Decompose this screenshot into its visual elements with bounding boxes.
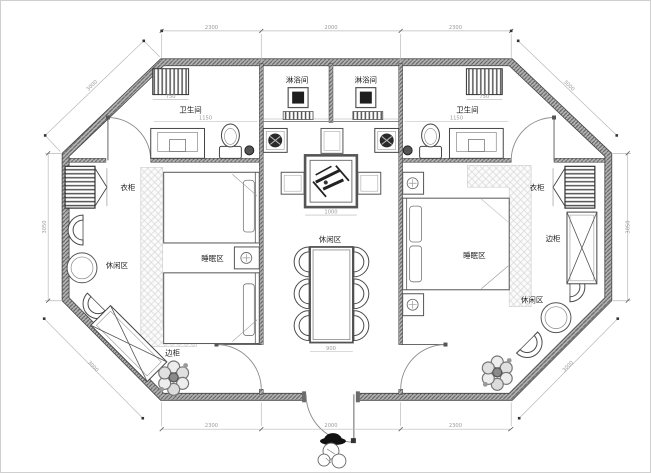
plant-right [482, 356, 512, 390]
toilet-right [420, 124, 442, 158]
bedroom-right: 衣柜 睡眠区 休闲区 边柜 [403, 166, 597, 390]
shower-left: 淋浴间 [283, 75, 313, 120]
lounge-right-label: 休闲区 [521, 295, 544, 305]
dim-top-left: 2300 [205, 25, 218, 31]
nightstand-left [234, 247, 259, 269]
door-bedroom-left [214, 343, 261, 390]
dim-center-table: 1000 [324, 210, 337, 216]
bed-left-1 [164, 172, 260, 243]
side-cabinet-right-label: 边柜 [546, 233, 561, 243]
dim-top-center: 2000 [324, 25, 337, 31]
nightstand-right-2 [403, 294, 424, 316]
toilet-left [219, 124, 241, 158]
entrance-opening [305, 390, 357, 403]
towel-radiator-left [153, 69, 189, 95]
vanity-right [449, 128, 503, 158]
lounge-left-label: 休闲区 [106, 260, 129, 270]
floor-plan-canvas: 750 1150 卫生间 750 115 [1, 1, 650, 472]
shower-bench-left [283, 112, 313, 120]
dim-bottom-center: 2000 [324, 423, 337, 429]
dim-diag-bottom-right: 3000 [561, 360, 575, 374]
dim-left-side: 3050 [42, 220, 48, 233]
wardrobe-left [65, 166, 107, 208]
towel-radiator-right [466, 69, 502, 95]
bathroom-right-label: 卫生间 [456, 105, 478, 115]
floor-plan-page: 750 1150 卫生间 750 115 [0, 0, 651, 473]
side-cabinet-right [567, 212, 597, 284]
bathroom-left: 750 1150 卫生间 [151, 69, 258, 159]
entrance-figure [318, 433, 346, 468]
shower-bench-right [353, 112, 383, 120]
door-bedroom-right [401, 343, 448, 390]
door-bathroom-left [106, 116, 151, 161]
wardrobe-right [553, 166, 595, 208]
bed-right [403, 198, 510, 290]
bathroom-right: 750 1150 卫生间 [403, 69, 508, 159]
dim-heater-left: 750 [166, 94, 176, 100]
shower-right-label: 淋浴间 [355, 75, 377, 85]
vanity-left [151, 128, 205, 158]
dim-right-side: 3050 [626, 220, 632, 233]
dim-bath-right: 1150 [450, 115, 463, 121]
wardrobe-left-label: 衣柜 [120, 182, 135, 192]
sleeping-left-label: 睡眠区 [201, 254, 224, 263]
dim-heater-right: 750 [479, 94, 489, 100]
appliance-unit-right [375, 128, 399, 152]
door-bathroom-right [511, 116, 556, 161]
floor-drain-right [403, 146, 412, 155]
shower-right: 淋浴间 [353, 75, 383, 120]
wardrobe-right-label: 衣柜 [530, 182, 545, 192]
dining-table [310, 247, 353, 343]
dim-dining-table: 900 [326, 346, 336, 352]
bathroom-left-label: 卫生间 [179, 105, 201, 115]
lounge-center-label: 休闲区 [319, 234, 342, 244]
appliance-unit-left [263, 128, 287, 152]
dim-diag-top-right: 3000 [562, 79, 576, 92]
floor-drain-left [245, 146, 254, 155]
dim-bottom-left: 2300 [205, 423, 218, 429]
nightstand-right-1 [403, 172, 424, 194]
dim-bottom-right: 2300 [449, 423, 462, 429]
shower-left-label: 淋浴间 [286, 75, 308, 85]
dim-top-right: 2300 [449, 25, 462, 31]
tea-table [305, 155, 357, 207]
dim-diag-bottom-left: 3000 [86, 360, 100, 374]
sleeping-right-label: 睡眠区 [463, 251, 486, 260]
side-cabinet-left-label: 边柜 [165, 347, 180, 357]
bed-left-2 [164, 273, 260, 344]
dim-bath-left: 1150 [199, 115, 212, 121]
central-hall: 1000 休闲区 900 [263, 128, 398, 468]
